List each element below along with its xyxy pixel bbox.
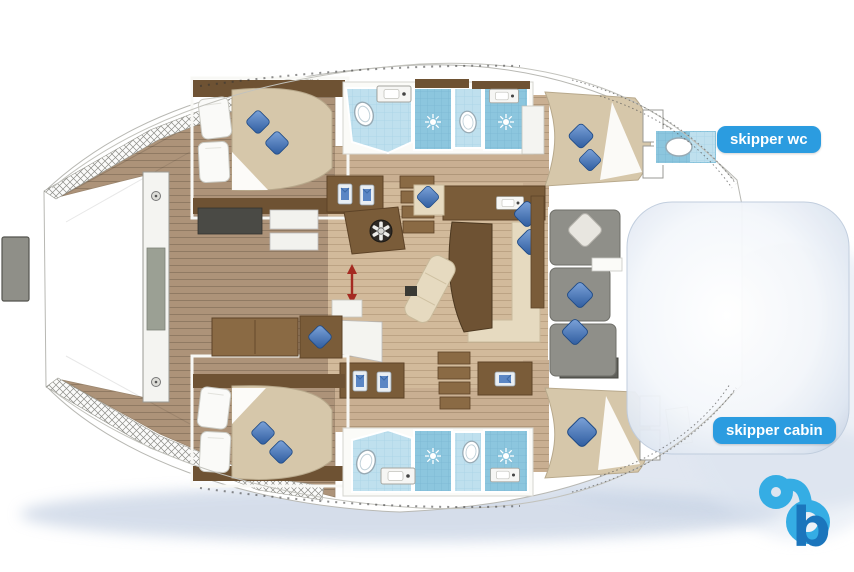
skipper-cabin-badge: skipper cabin: [713, 417, 836, 444]
sink-icon: [381, 468, 415, 484]
shower-drain-icon: [498, 448, 514, 464]
pillow-icon: [198, 96, 233, 139]
boataround-logo: b: [742, 452, 852, 562]
bowsprit-fitting: [2, 237, 29, 301]
locker-item-icon: [338, 184, 352, 204]
sink-icon: [377, 86, 411, 102]
pillow-icon: [199, 431, 231, 473]
locker-item-icon: [360, 185, 374, 205]
sink-icon: [491, 468, 520, 482]
shower-drain-icon: [425, 114, 441, 130]
catamaran-floorplan: [0, 0, 854, 572]
helm-wheel-icon: [370, 220, 392, 242]
starboard-bathrooms: [343, 428, 533, 496]
starboard-forward-cabin: [192, 316, 348, 486]
locker-item-icon: [377, 372, 391, 392]
boat-layout-image: skipper wc skipper cabin b: [0, 0, 854, 572]
shower-drain-icon: [425, 448, 441, 464]
port-bathrooms: [343, 79, 533, 154]
pillow-icon: [197, 386, 232, 429]
locker-item-icon: [353, 371, 367, 391]
logo-letter: b: [792, 496, 831, 559]
shower-drain-icon: [498, 114, 514, 130]
toilet-icon: [666, 138, 692, 156]
sink-icon: [490, 89, 519, 103]
skipper-wc-badge: skipper wc: [717, 126, 821, 153]
locker-item-icon: [495, 372, 515, 386]
pillow-icon: [198, 141, 230, 183]
